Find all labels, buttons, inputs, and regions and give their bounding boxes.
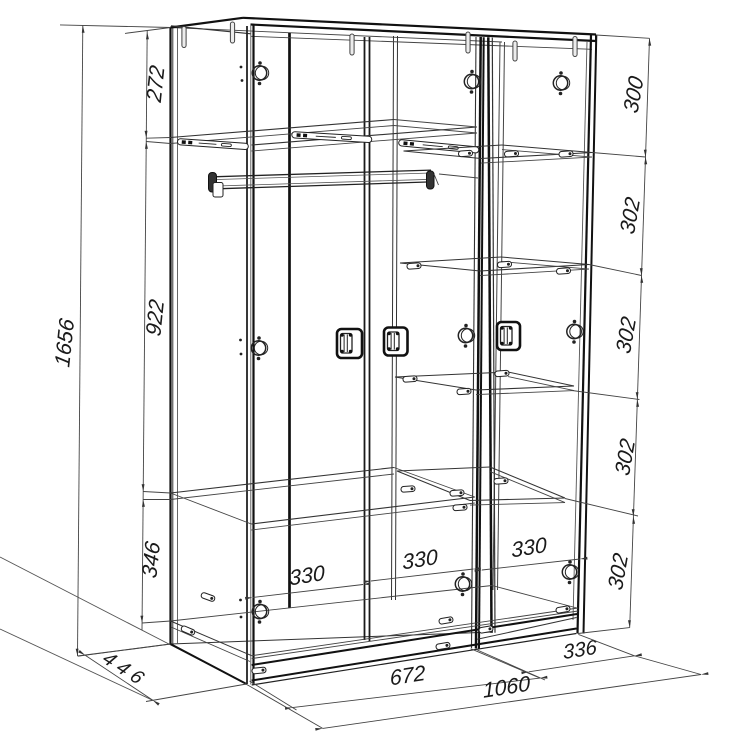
svg-text:922: 922 (141, 297, 169, 338)
svg-text:272: 272 (141, 63, 169, 105)
svg-text:346: 346 (137, 539, 165, 580)
svg-text:1656: 1656 (49, 316, 79, 369)
